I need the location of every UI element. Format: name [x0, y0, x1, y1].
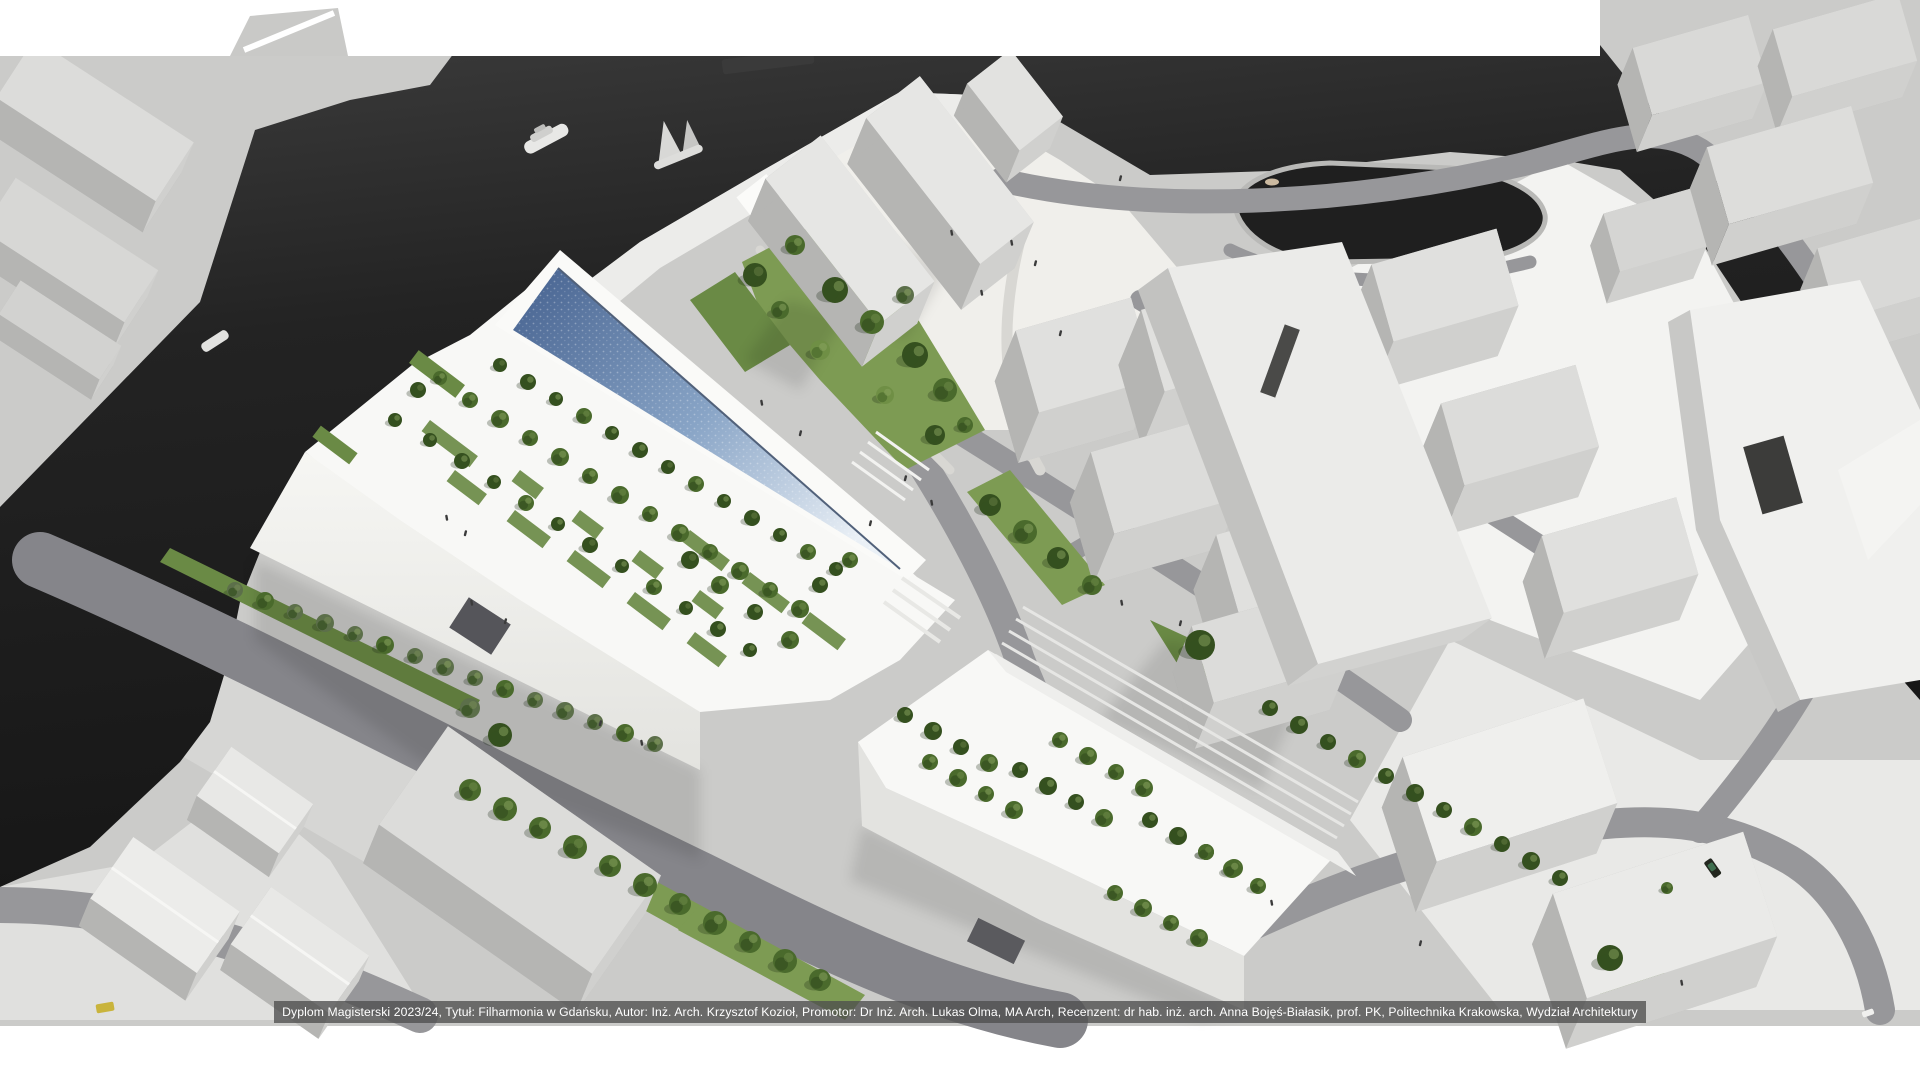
- caption-bar: Dyplom Magisterski 2023/24, Tytuł: Filha…: [274, 1001, 1646, 1023]
- pond-fountain: [1265, 179, 1279, 186]
- architectural-rendering: Dyplom Magisterski 2023/24, Tytuł: Filha…: [0, 0, 1920, 1080]
- top-margin: [0, 0, 1600, 56]
- caption-text: Dyplom Magisterski 2023/24, Tytuł: Filha…: [282, 1005, 1638, 1019]
- render-canvas: [0, 0, 1920, 1080]
